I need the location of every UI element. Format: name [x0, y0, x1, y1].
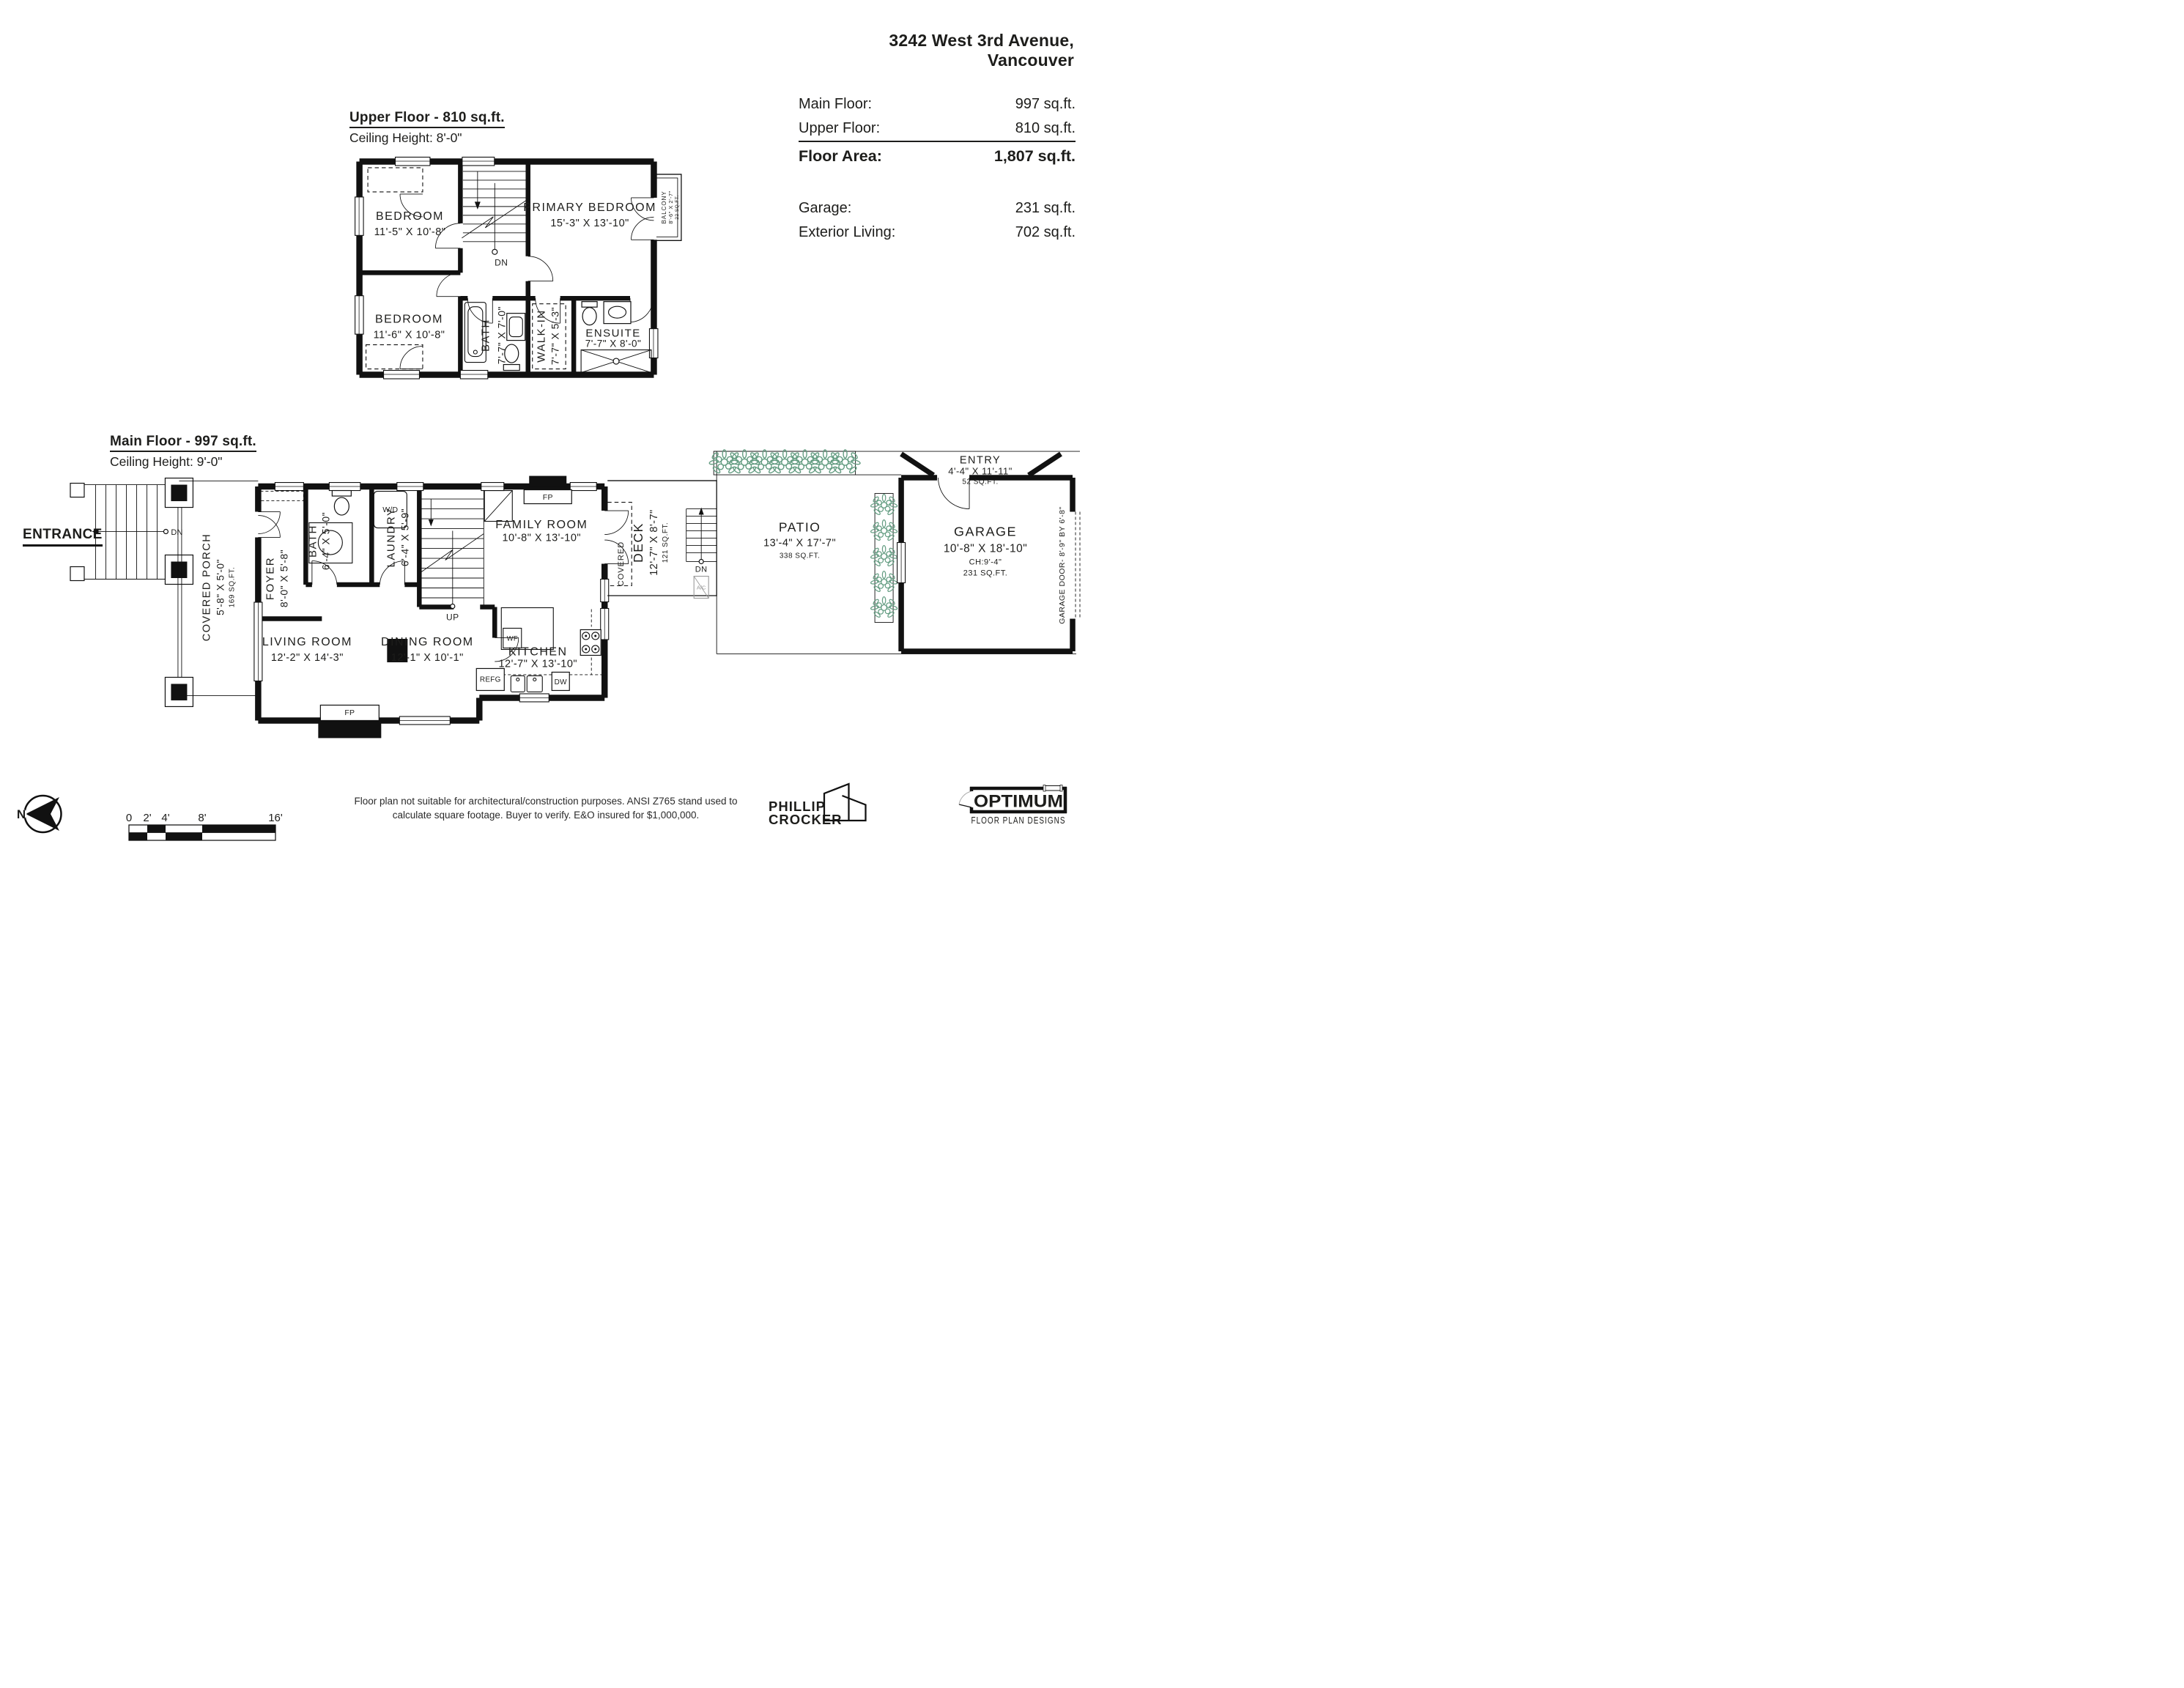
summary-row-main-floor: Main Floor: 997 sq.ft. [799, 92, 1076, 116]
room-label-bedroom1: BEDROOM [376, 210, 444, 223]
plant-icon [870, 495, 897, 516]
main-room-labels: FOYER 8'-0" X 5'-8" BATH 6'-4" X 5'-0" L… [262, 508, 588, 670]
summary-label: Floor Area: [799, 142, 882, 170]
hedge-top [709, 450, 1080, 475]
room-label-entry: ENTRY [960, 455, 1001, 467]
summary-row-upper-floor: Upper Floor: 810 sq.ft. [799, 116, 1076, 142]
fireplace-family: FP [524, 476, 571, 504]
upper-floor-plan: DN [349, 154, 684, 382]
garage: GARAGE DOOR- 8'-9" BY 6'-8" GARAGE 10'-8… [897, 478, 1080, 651]
footer: N 0 2' 4' 8' 16' Floor plan not suitable… [15, 773, 1084, 844]
brand-name: OPTIMUM [974, 792, 1063, 812]
stair-direction-arrow [92, 529, 98, 534]
room-label-living: LIVING ROOM [262, 636, 352, 648]
room-dims-covered-porch: 5'-8" X 5'-0" [215, 559, 226, 615]
summary-label: Main Floor: [799, 92, 872, 116]
room-label-garage: GARAGE [954, 525, 1017, 539]
summary-row-floor-area: Floor Area: 1,807 sq.ft. [799, 142, 1076, 170]
room-dims-bedroom1: 11'-5" X 10'-8" [374, 226, 446, 238]
fireplace-living: FP [318, 705, 381, 738]
room-dims-ensuite: 7'-7" X 8'-0" [585, 338, 642, 349]
room-dims-dining: 12'-1" X 10'-1" [391, 652, 464, 664]
plant-icon [870, 546, 897, 567]
main-floor-plan: DN COVERED PORCH 5'-8" X 5'-0" 169 SQ.FT… [20, 448, 1084, 745]
ac-label: A/C [697, 585, 706, 591]
toilet [503, 365, 519, 371]
door-swing-icon [959, 791, 971, 804]
plant-icon [870, 597, 897, 618]
upper-stairs: DN [462, 171, 525, 268]
address-line-1: 3242 West 3rd Avenue, [889, 31, 1074, 51]
room-label-bedroom2: BEDROOM [375, 314, 443, 326]
scale-bar: 0 2' 4' 8' 16' [126, 812, 283, 840]
room-dims-primary-bedroom: 15'-3" X 13'-10" [550, 218, 629, 229]
stair-direction-arrow [475, 201, 481, 209]
patio: PATIO 13'-4" X 17'-7" 338 SQ.FT. [763, 520, 836, 560]
toilet [582, 302, 597, 307]
room-label-deck: DECK [631, 522, 645, 563]
upper-floor-title: Upper Floor - 810 sq.ft. [349, 110, 505, 128]
stairs-up-label: UP [446, 612, 459, 622]
room-dims-bedroom2: 11'-6" X 10'-8" [374, 330, 445, 341]
room-label-main-bath: BATH [306, 525, 319, 558]
disclaimer-line-2: calculate square footage. Buyer to verif… [393, 810, 700, 821]
room-label-bath: BATH [479, 319, 492, 352]
room-dims-bath: 7'-7" X 7'-0" [495, 306, 507, 364]
upper-floor-title-block: Upper Floor - 810 sq.ft. Ceiling Height:… [349, 110, 505, 146]
main-stairs-up: UP [421, 491, 512, 623]
credit-logo: PHILLIP CROCKER [769, 784, 866, 827]
scale-tick: 8' [198, 812, 206, 824]
plant-icon [870, 571, 897, 593]
summary-value: 1,807 sq.ft. [994, 142, 1076, 170]
room-area-balcony: 22 SQ.FT. [675, 195, 680, 220]
address-line-2: Vancouver [889, 51, 1074, 70]
stair-direction-arrow [699, 508, 704, 515]
room-area-deck: 121 SQ.FT. [662, 522, 670, 563]
room-ch-garage: CH:9'-4" [969, 558, 1002, 567]
entry-walk: ENTRY 4'-4" X 11'-11" 52 SQ.FT. [901, 454, 1061, 486]
summary-label: Exterior Living: [799, 221, 895, 245]
room-label-patio: PATIO [779, 520, 821, 535]
room-label-walkin: WALK-IN [536, 309, 548, 362]
room-dims-garage: 10'-8" X 18'-10" [944, 543, 1027, 555]
upper-stairs-dn-label: DN [495, 258, 508, 268]
deck-dn-label: DN [695, 566, 708, 574]
stair-direction-arrow [429, 519, 434, 526]
summary-row-garage: Garage: 231 sq.ft. [799, 196, 1076, 221]
room-label-ensuite: ENSUITE [585, 327, 640, 340]
garage-door-label: GARAGE DOOR- 8'-9" BY 6'-8" [1059, 506, 1067, 624]
room-dims-walkin: 7'-7" X 5'-3" [549, 307, 561, 365]
room-label-balcony: BALCONY [661, 190, 667, 223]
entrance-dn-label: DN [171, 528, 182, 537]
hedge-side [870, 494, 897, 623]
summary-label: Garage: [799, 196, 851, 221]
room-dims-balcony: 8'-6" X 2'-7" [667, 190, 674, 223]
room-dims-living: 12'-2" X 14'-3" [271, 652, 344, 664]
scale-tick: 4' [161, 812, 169, 824]
room-area-garage: 231 SQ.FT. [963, 569, 1008, 578]
summary-value: 997 sq.ft. [1015, 92, 1076, 116]
credit-name-line-2: CROCKER [769, 812, 843, 827]
vanity-sink [604, 302, 631, 324]
room-area-covered-porch: 169 SQ.FT. [228, 567, 236, 607]
summary-value: 231 sq.ft. [1015, 196, 1076, 221]
room-dims-family: 10'-8" X 13'-10" [502, 533, 581, 544]
summary-label: Upper Floor: [799, 116, 880, 141]
covered-label: COVERED [617, 541, 626, 586]
room-label-family: FAMILY ROOM [495, 519, 588, 531]
refrigerator-label: REFG [480, 675, 501, 684]
summary-row-exterior-living: Exterior Living: 702 sq.ft. [799, 221, 1076, 245]
scale-tick: 16' [268, 812, 283, 824]
brand-logo: OPTIMUM FLOOR PLAN DESIGNS [959, 785, 1067, 826]
north-label: N [17, 807, 26, 821]
compass-icon: N [16, 796, 62, 832]
room-label-primary-bedroom: PRIMARY BEDROOM [523, 201, 656, 214]
room-dims-laundry: 6'-4" X 5'-9" [399, 508, 410, 566]
room-label-kitchen: KITCHEN [508, 645, 568, 658]
room-dims-deck: 12'-7" X 8'-7" [648, 509, 660, 575]
upper-floor-ceiling: Ceiling Height: 8'-0" [349, 130, 505, 146]
room-dims-foyer: 8'-0" X 5'-8" [278, 549, 289, 607]
property-address: 3242 West 3rd Avenue, Vancouver [889, 31, 1074, 70]
wine-fridge-label: WF [507, 634, 518, 643]
upper-bath-fixtures [464, 303, 525, 371]
disclaimer-line-1: Floor plan not suitable for architectura… [354, 796, 737, 807]
fireplace-label: FP [543, 494, 553, 502]
scale-tick: 0 [126, 812, 132, 824]
dishwasher-label: DW [555, 678, 567, 686]
summary-value: 810 sq.ft. [1015, 116, 1076, 141]
scale-tick: 2' [143, 812, 151, 824]
disclaimer: Floor plan not suitable for architectura… [354, 796, 737, 821]
area-summary: Main Floor: 997 sq.ft. Upper Floor: 810 … [799, 92, 1076, 245]
floor-plan-page: 3242 West 3rd Avenue, Vancouver Main Flo… [0, 0, 1092, 844]
plant-icon [870, 520, 897, 541]
toilet [332, 491, 351, 496]
room-dims-patio: 13'-4" X 17'-7" [763, 538, 836, 549]
room-dims-kitchen: 12'-7" X 13'-10" [498, 658, 577, 670]
room-dims-main-bath: 6'-4" X 5'-0" [319, 512, 331, 570]
room-label-foyer: FOYER [264, 557, 276, 600]
summary-value: 702 sq.ft. [1015, 221, 1076, 245]
room-label-laundry: LAUNDRY [385, 508, 397, 568]
room-label-dining: DINING ROOM [381, 636, 474, 648]
covered-porch: COVERED PORCH 5'-8" X 5'-0" 169 SQ.FT. [165, 478, 258, 707]
room-label-covered-porch: COVERED PORCH [201, 533, 212, 641]
fireplace-label: FP [344, 709, 355, 717]
brand-tagline: FLOOR PLAN DESIGNS [971, 815, 1066, 826]
room-area-patio: 338 SQ.FT. [780, 552, 821, 560]
